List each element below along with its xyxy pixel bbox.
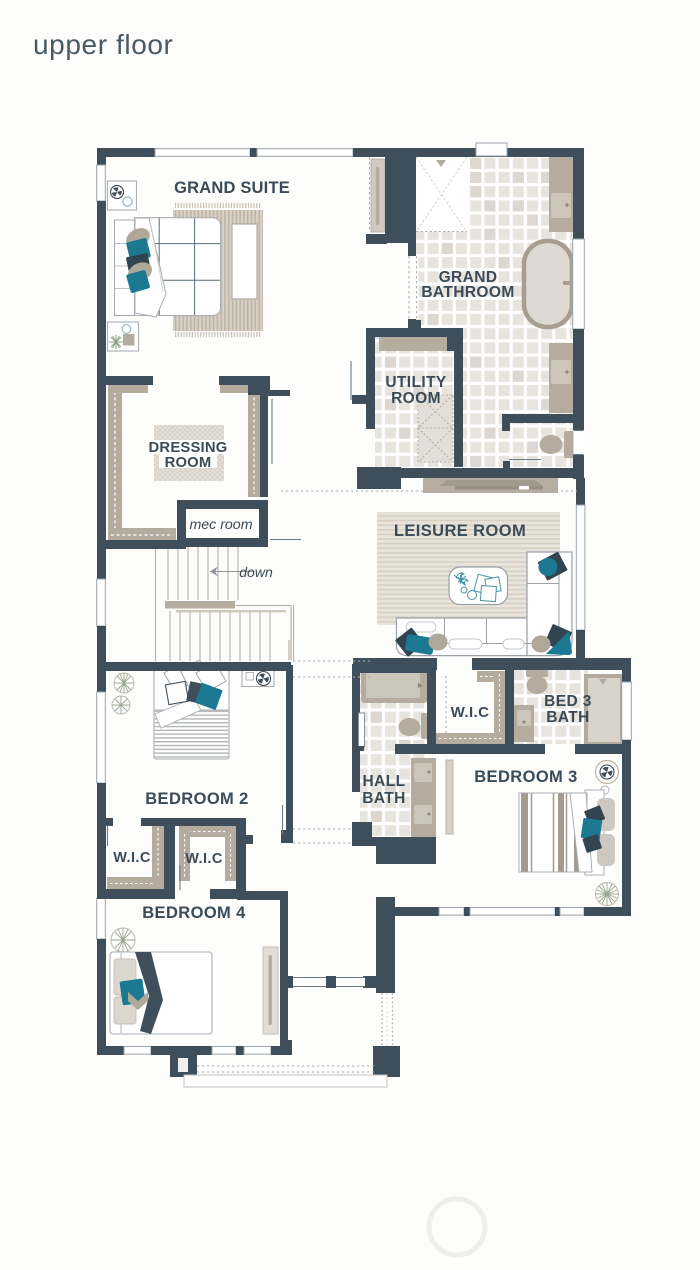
- svg-text:BEDROOM 2: BEDROOM 2: [145, 790, 249, 808]
- svg-text:ROOM: ROOM: [165, 455, 212, 471]
- svg-text:GRAND SUITE: GRAND SUITE: [174, 179, 290, 197]
- svg-text:BEDROOM 3: BEDROOM 3: [474, 768, 578, 786]
- svg-text:DRESSING: DRESSING: [149, 440, 228, 456]
- svg-text:upper floor: upper floor: [33, 29, 173, 60]
- svg-text:down: down: [239, 564, 273, 580]
- svg-text:UTILITY: UTILITY: [385, 374, 447, 391]
- svg-text:BEDROOM 4: BEDROOM 4: [142, 904, 246, 922]
- svg-text:W.I.C: W.I.C: [185, 851, 223, 867]
- svg-text:BATH: BATH: [362, 790, 406, 807]
- svg-text:mec room: mec room: [189, 517, 252, 533]
- svg-text:W.I.C: W.I.C: [451, 704, 490, 721]
- svg-text:BATH: BATH: [546, 709, 590, 726]
- svg-text:BATHROOM: BATHROOM: [421, 284, 514, 301]
- svg-text:HALL: HALL: [363, 773, 406, 790]
- svg-text:W.I.C: W.I.C: [113, 850, 151, 866]
- svg-text:BED 3: BED 3: [544, 693, 592, 710]
- svg-text:LEISURE ROOM: LEISURE ROOM: [394, 522, 526, 540]
- svg-text:ROOM: ROOM: [391, 390, 441, 407]
